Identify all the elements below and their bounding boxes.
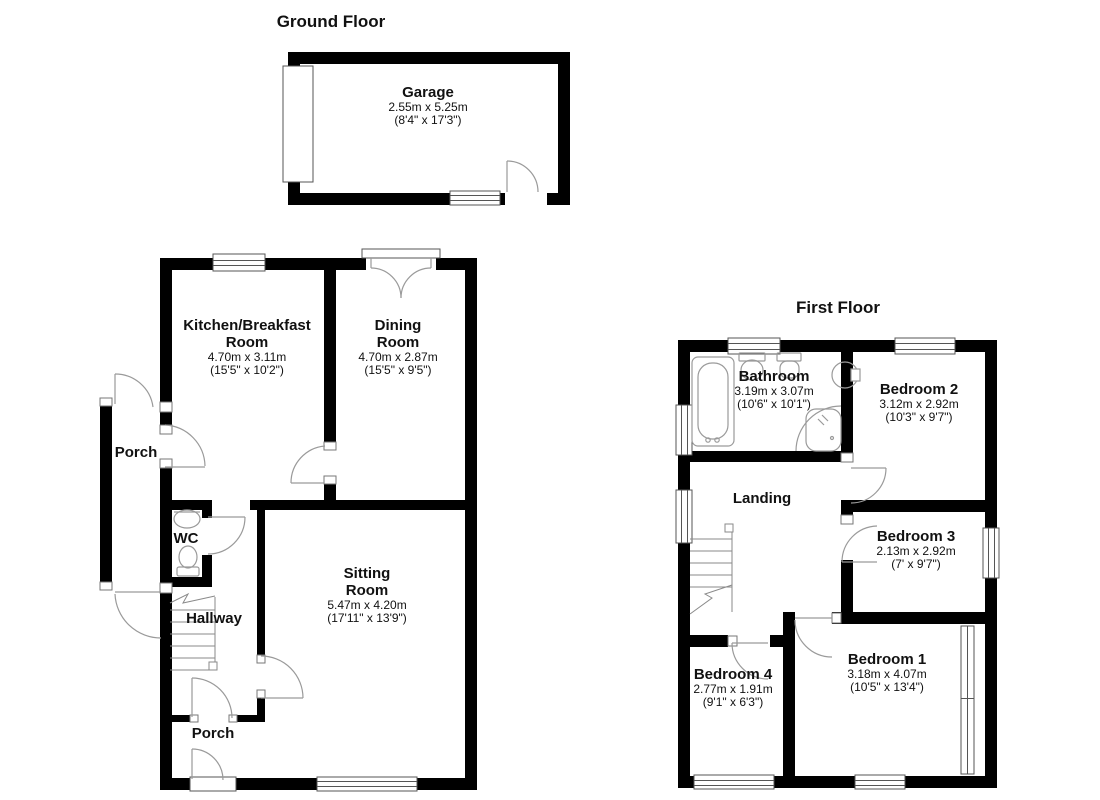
room-name: Landing [733,490,791,507]
kitchen-window [213,254,265,271]
room-dims-metric: 3.18m x 4.07m [847,668,926,681]
room-label-garage: Garage 2.55m x 5.25m (8'4" x 17'3") [388,84,467,126]
room-label-bathroom: Bathroom 3.19m x 3.07m (10'6" x 10'1") [734,368,813,410]
room-dims-imperial: (10'3" x 9'7") [879,411,958,424]
room-dims-metric: 4.70m x 2.87m [358,351,437,364]
room-label-kitchen: Kitchen/Breakfast Room 4.70m x 3.11m (15… [183,317,311,376]
room-name: Sitting [327,565,407,582]
porch-top-door-icon [115,374,153,407]
room-dims-imperial: (10'6" x 10'1") [734,398,813,411]
room-label-bedroom3: Bedroom 3 2.13m x 2.92m (7' x 9'7") [876,528,955,570]
room-name: Garage [388,84,467,101]
room-label-bedroom2: Bedroom 2 3.12m x 2.92m (10'3" x 9'7") [879,381,958,423]
room-name: Bedroom 4 [693,666,772,683]
bedroom3-window [983,528,999,578]
room-label-sitting: Sitting Room 5.47m x 4.20m (17'11" x 13'… [327,565,407,624]
room-label-wc: WC [174,530,199,547]
room-name: Hallway [186,610,242,627]
room-label-dining: Dining Room 4.70m x 2.87m (15'5" x 9'5") [358,317,437,376]
room-name: Kitchen/Breakfast [183,317,311,334]
room-dims-metric: 4.70m x 3.11m [183,351,311,364]
bathroom-window-top [728,338,780,354]
room-dims-metric: 3.12m x 2.92m [879,398,958,411]
room-dims-imperial: (10'5" x 13'4") [847,681,926,694]
room-name: Bedroom 3 [876,528,955,545]
room-dims-imperial: (17'11" x 13'9") [327,612,407,625]
room-dims-metric: 2.77m x 1.91m [693,683,772,696]
room-name: Bathroom [734,368,813,385]
room-dims-imperial: (8'4" x 17'3") [388,114,467,127]
room-name-line2: Room [183,334,311,351]
room-dims-metric: 5.47m x 4.20m [327,599,407,612]
garage-side-door-opening [505,192,547,205]
porch-bottom-door-icon [115,592,161,638]
first-floor-title: First Floor [796,299,880,317]
room-label-porch-bottom: Porch [192,725,235,742]
french-doors-frame [362,249,440,258]
room-label-porch-side: Porch [115,444,158,461]
room-name: Porch [192,725,235,742]
bedroom2-window [895,338,955,354]
porch-outer-wall [100,398,112,590]
room-dims-imperial: (15'5" x 10'2") [183,364,311,377]
room-name: WC [174,530,199,547]
porch-exterior-door-opening [190,777,236,791]
room-name-line2: Room [327,582,407,599]
room-name: Porch [115,444,158,461]
room-label-hallway: Hallway [186,610,242,627]
bathroom-window-left [676,405,692,455]
bedroom1-window-bottom [855,775,905,789]
sitting-room-window [317,777,417,791]
garage-window [450,191,500,205]
ground-floor-title: Ground Floor [277,13,386,31]
room-name: Dining [358,317,437,334]
room-label-landing: Landing [733,490,791,507]
room-dims-metric: 2.13m x 2.92m [876,545,955,558]
room-label-bedroom1: Bedroom 1 3.18m x 4.07m (10'5" x 13'4") [847,651,926,693]
floorplan-page: Ground Floor First Floor Garage 2.55m x … [0,0,1100,800]
garage-door [283,66,313,182]
garage-plan [283,52,570,205]
bedroom4-window [694,775,774,789]
room-dims-imperial: (9'1" x 6'3") [693,696,772,709]
room-name-line2: Room [358,334,437,351]
room-dims-metric: 2.55m x 5.25m [388,101,467,114]
room-name: Bedroom 1 [847,651,926,668]
room-name: Bedroom 2 [879,381,958,398]
room-dims-metric: 3.19m x 3.07m [734,385,813,398]
room-label-bedroom4: Bedroom 4 2.77m x 1.91m (9'1" x 6'3") [693,666,772,708]
room-dims-imperial: (7' x 9'7") [876,558,955,571]
landing-window [676,490,692,543]
room-dims-imperial: (15'5" x 9'5") [358,364,437,377]
